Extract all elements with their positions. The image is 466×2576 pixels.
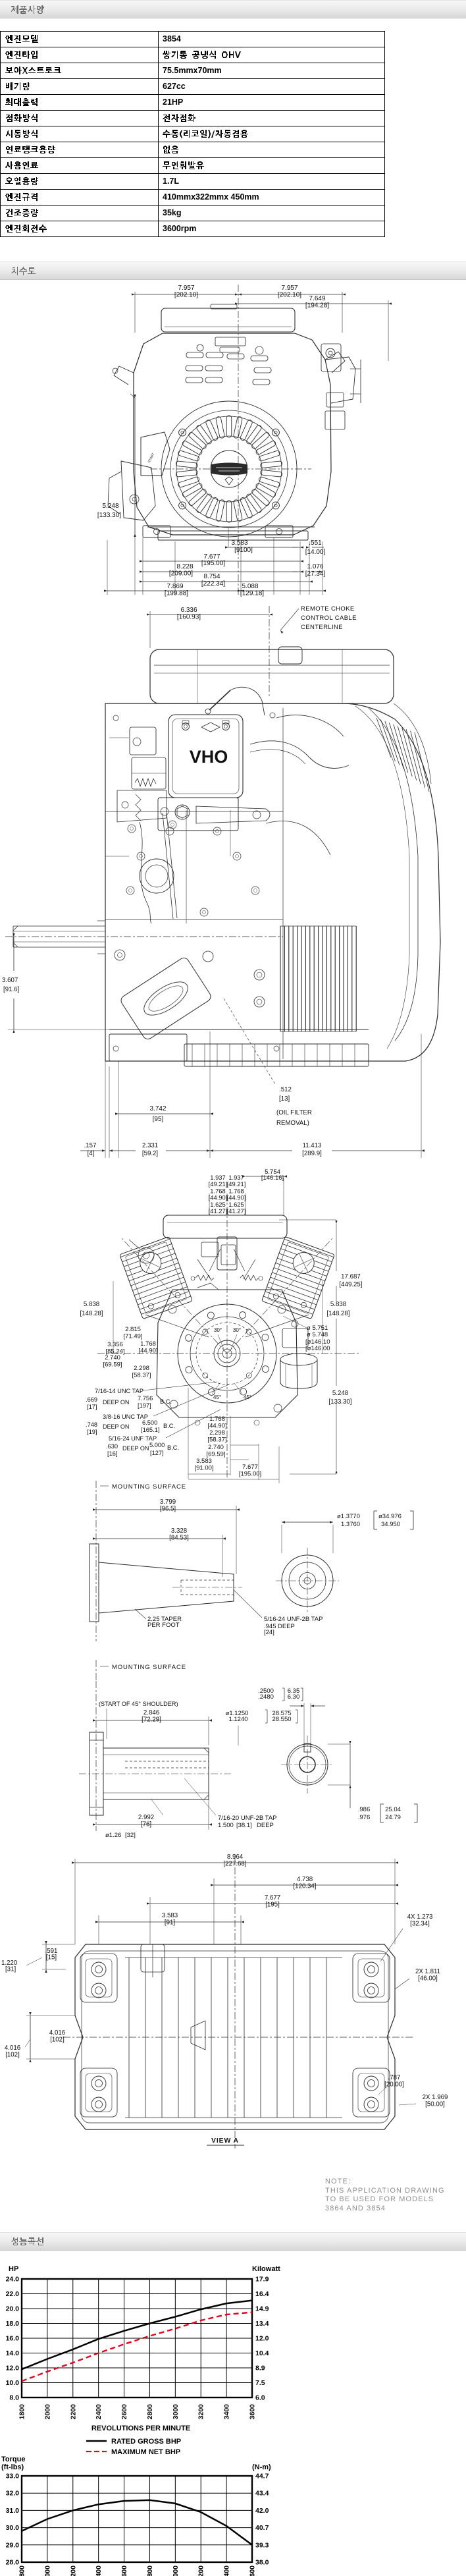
svg-text:ø1.3770: ø1.3770	[337, 1513, 360, 1520]
svg-text:25.04: 25.04	[385, 1806, 401, 1813]
svg-text:2000: 2000	[43, 2565, 51, 2576]
svg-text:7.5: 7.5	[255, 2379, 265, 2387]
svg-text:3.583: 3.583	[162, 1912, 178, 1919]
svg-text:2.815: 2.815	[125, 1326, 141, 1333]
svg-text:30.0: 30.0	[6, 2524, 20, 2532]
svg-text:1.1240: 1.1240	[228, 1716, 247, 1723]
svg-text:16.4: 16.4	[255, 2290, 269, 2298]
svg-text:[14.00]: [14.00]	[305, 549, 326, 556]
svg-text:44.7: 44.7	[255, 2473, 269, 2480]
svg-text:5/16-24 UNF-2B TAP: 5/16-24 UNF-2B TAP	[264, 1616, 323, 1623]
svg-text:[148.28]: [148.28]	[80, 1310, 103, 1317]
svg-text:[102]: [102]	[50, 2036, 65, 2043]
svg-text:[96.5]: [96.5]	[160, 1505, 176, 1512]
svg-text:[120.34]: [120.34]	[293, 1882, 316, 1890]
svg-text:3400: 3400	[223, 2404, 231, 2420]
svg-text:5.838: 5.838	[330, 1301, 346, 1308]
svg-text:[91.00]: [91.00]	[194, 1464, 213, 1471]
svg-text:1800: 1800	[18, 2565, 26, 2576]
svg-text:2400: 2400	[95, 2404, 103, 2420]
svg-text:12.0: 12.0	[6, 2365, 20, 2372]
svg-text:[72.29]: [72.29]	[142, 1716, 161, 1723]
svg-text:8.754: 8.754	[203, 573, 220, 580]
svg-text:B.C.: B.C.	[167, 1444, 179, 1451]
svg-text:.986: .986	[358, 1806, 371, 1813]
svg-text:31.0: 31.0	[6, 2507, 20, 2515]
svg-text:7.869: 7.869	[167, 583, 183, 590]
svg-text:17.687: 17.687	[341, 1273, 361, 1280]
svg-text:[32.34]: [32.34]	[410, 1920, 430, 1927]
svg-text:7.677: 7.677	[242, 1464, 258, 1471]
svg-text:ø34.976: ø34.976	[378, 1513, 401, 1520]
svg-text:[38.1]: [38.1]	[236, 1822, 252, 1829]
svg-text:[289.9]: [289.9]	[302, 1150, 322, 1157]
svg-text:DEEP ON: DEEP ON	[103, 1399, 129, 1406]
svg-text:4X 1.273: 4X 1.273	[407, 1913, 433, 1921]
svg-text:3.328: 3.328	[171, 1527, 187, 1535]
svg-text:[44.90]: [44.90]	[207, 1422, 226, 1429]
svg-text:[160.93]: [160.93]	[177, 613, 201, 620]
svg-text:2.740: 2.740	[208, 1444, 224, 1451]
svg-text:10.4: 10.4	[255, 2349, 269, 2357]
svg-text:[227.68]: [227.68]	[223, 1860, 246, 1867]
svg-text:2600: 2600	[120, 2404, 128, 2420]
svg-text:3000: 3000	[172, 2404, 180, 2420]
svg-text:2800: 2800	[146, 2404, 154, 2420]
svg-text:[15]: [15]	[46, 1954, 57, 1961]
svg-text:3200: 3200	[197, 2404, 205, 2420]
svg-text:[91]: [91]	[165, 1919, 175, 1926]
svg-text:2X 1.969: 2X 1.969	[423, 2094, 448, 2101]
svg-text:7.957: 7.957	[281, 285, 298, 292]
svg-text:[44.90]: [44.90]	[138, 1347, 157, 1354]
svg-text:8.9: 8.9	[255, 2365, 265, 2372]
svg-text:2200: 2200	[69, 2404, 77, 2420]
svg-text:[91.6]: [91.6]	[3, 986, 19, 993]
svg-text:(ft-lbs): (ft-lbs)	[1, 2463, 24, 2471]
svg-text:6.336: 6.336	[180, 607, 197, 614]
svg-text:5.000: 5.000	[149, 1442, 165, 1448]
svg-text:ø1.26: ø1.26	[105, 1832, 121, 1839]
svg-text:22.0: 22.0	[6, 2290, 20, 2298]
svg-text:5.838: 5.838	[84, 1301, 99, 1308]
svg-text:2X 1.811: 2X 1.811	[415, 1968, 440, 1975]
svg-text:B.C.: B.C.	[163, 1423, 175, 1429]
svg-text:3.799: 3.799	[160, 1498, 176, 1506]
svg-text:34.950: 34.950	[381, 1521, 400, 1528]
svg-text:2.298: 2.298	[209, 1429, 225, 1437]
svg-text:[50.00]: [50.00]	[425, 2100, 445, 2108]
svg-text:.976: .976	[358, 1814, 371, 1821]
svg-text:[84.53]: [84.53]	[169, 1534, 189, 1541]
svg-text:3.742: 3.742	[149, 1105, 166, 1112]
svg-text:OHV: OHV	[190, 747, 228, 767]
svg-text:1.768: 1.768	[140, 1340, 156, 1348]
svg-text:2800: 2800	[146, 2565, 154, 2576]
svg-text:3400: 3400	[223, 2565, 231, 2576]
svg-text:2.298: 2.298	[134, 1365, 149, 1372]
svg-text:2.331: 2.331	[142, 1142, 158, 1149]
svg-text:[195.00]: [195.00]	[239, 1470, 261, 1477]
svg-text:(START OF 45° SHOULDER): (START OF 45° SHOULDER)	[99, 1701, 178, 1707]
svg-text:CENTERLINE: CENTERLINE	[301, 624, 343, 631]
svg-text:ø 5.748: ø 5.748	[307, 1331, 328, 1338]
svg-text:VIEW A: VIEW A	[211, 2137, 239, 2145]
svg-text:24.0: 24.0	[6, 2276, 20, 2284]
svg-text:[31]: [31]	[5, 1966, 16, 1973]
svg-text:[222.34]: [222.34]	[201, 580, 225, 588]
svg-text:.748: .748	[86, 1421, 97, 1428]
svg-text:[58.37]: [58.37]	[207, 1436, 226, 1443]
svg-text:2000: 2000	[43, 2404, 51, 2420]
svg-text:5.088: 5.088	[242, 583, 258, 590]
svg-text:12.0: 12.0	[255, 2335, 269, 2343]
svg-text:3600: 3600	[249, 2404, 257, 2420]
svg-text:DEEP: DEEP	[257, 1822, 274, 1829]
svg-text:MAXIMUM NET BHP: MAXIMUM NET BHP	[111, 2448, 180, 2456]
svg-text:CONTROL CABLE: CONTROL CABLE	[301, 615, 357, 622]
svg-text:5/16-24 UNF TAP: 5/16-24 UNF TAP	[109, 1435, 157, 1442]
svg-text:1800: 1800	[18, 2404, 26, 2420]
svg-text:[129.18]: [129.18]	[240, 590, 264, 597]
svg-text:[9100]: [9100]	[234, 547, 253, 554]
svg-text:4.016: 4.016	[49, 2029, 65, 2037]
svg-text:DEEP: DEEP	[278, 1623, 295, 1630]
svg-text:42.0: 42.0	[255, 2507, 269, 2515]
svg-text:16.0: 16.0	[6, 2335, 20, 2343]
svg-text:1.3760: 1.3760	[341, 1521, 360, 1528]
svg-text:[71.49]: [71.49]	[123, 1332, 142, 1340]
svg-text:10.0: 10.0	[6, 2379, 20, 2387]
svg-text:RATED GROSS BHP: RATED GROSS BHP	[111, 2438, 181, 2446]
svg-text:[199.88]: [199.88]	[165, 590, 188, 597]
svg-text:40.7: 40.7	[255, 2524, 269, 2532]
svg-text:17.9: 17.9	[255, 2276, 269, 2284]
svg-text:1.768: 1.768	[209, 1415, 225, 1423]
svg-text:14.0: 14.0	[6, 2349, 20, 2357]
svg-text:38.0: 38.0	[255, 2559, 269, 2567]
svg-text:[59.2]: [59.2]	[142, 1150, 158, 1157]
svg-text:3200: 3200	[197, 2565, 205, 2576]
svg-text:13.4: 13.4	[255, 2320, 269, 2328]
svg-text:[202.10]: [202.10]	[174, 291, 198, 298]
svg-text:[133.30]: [133.30]	[97, 512, 121, 519]
svg-text:20.0: 20.0	[6, 2305, 20, 2313]
svg-text:29.0: 29.0	[6, 2541, 20, 2549]
svg-text:MOUNTING SURFACE: MOUNTING SURFACE	[112, 1664, 186, 1671]
svg-text:DEEP ON: DEEP ON	[122, 1445, 149, 1452]
svg-text:Torque: Torque	[1, 2455, 25, 2463]
svg-text:.512: .512	[279, 1086, 292, 1093]
svg-text:28.0: 28.0	[6, 2559, 20, 2567]
svg-text:3.583: 3.583	[196, 1458, 212, 1465]
svg-text:[69.59]: [69.59]	[103, 1361, 122, 1368]
svg-text:8.228: 8.228	[176, 563, 193, 570]
svg-text:43.4: 43.4	[255, 2490, 269, 2498]
svg-text:[195]: [195]	[265, 1901, 280, 1908]
svg-text:[ø146.00: [ø146.00	[305, 1345, 330, 1352]
svg-text:6.30: 6.30	[288, 1693, 300, 1701]
svg-text:6.0: 6.0	[255, 2394, 265, 2402]
svg-text:30°: 30°	[233, 1327, 241, 1333]
svg-text:3.356: 3.356	[107, 1341, 123, 1348]
svg-text:45°: 45°	[213, 1394, 221, 1400]
svg-text:MOUNTING SURFACE: MOUNTING SURFACE	[112, 1483, 186, 1491]
svg-text:18.0: 18.0	[6, 2320, 20, 2328]
svg-text:2.846: 2.846	[143, 1709, 159, 1716]
svg-text:4.738: 4.738	[297, 1876, 313, 1883]
svg-text:[102]: [102]	[5, 2051, 20, 2058]
svg-text:6.500: 6.500	[142, 1419, 157, 1426]
svg-text:REMOVAL): REMOVAL)	[276, 1120, 309, 1127]
svg-text:2.740: 2.740	[105, 1354, 120, 1361]
svg-text:[41.27]: [41.27]	[227, 1207, 246, 1215]
svg-text:2600: 2600	[120, 2565, 128, 2576]
svg-text:[13]: [13]	[279, 1095, 290, 1103]
svg-text:[20.00]: [20.00]	[384, 2081, 404, 2088]
svg-text:11.413: 11.413	[303, 1142, 322, 1149]
svg-text:39.3: 39.3	[255, 2541, 269, 2549]
svg-text:7.677: 7.677	[265, 1894, 280, 1902]
svg-text:.669: .669	[86, 1396, 97, 1403]
svg-text:[146.16]: [146.16]	[261, 1174, 284, 1182]
svg-text:[27.34]: [27.34]	[305, 570, 326, 578]
svg-text:3000: 3000	[172, 2565, 180, 2576]
svg-text:PER FOOT: PER FOOT	[147, 1622, 180, 1629]
svg-text:[127]: [127]	[150, 1450, 164, 1456]
svg-text:.630: .630	[106, 1443, 118, 1450]
svg-text:.787: .787	[388, 2074, 401, 2081]
svg-text:[17]: [17]	[87, 1404, 97, 1410]
svg-text:33.0: 33.0	[6, 2473, 20, 2480]
svg-text:[69.59]: [69.59]	[206, 1450, 225, 1458]
svg-text:3600: 3600	[249, 2565, 257, 2576]
svg-text:HP: HP	[9, 2265, 18, 2273]
svg-text:START: START	[147, 452, 156, 464]
svg-text:[58.37]: [58.37]	[132, 1371, 151, 1379]
svg-text:7.756: 7.756	[138, 1395, 153, 1402]
svg-text:[197]: [197]	[138, 1402, 151, 1409]
svg-text:8.964: 8.964	[227, 1853, 244, 1861]
svg-text:28.550: 28.550	[272, 1716, 291, 1723]
svg-text:[95]: [95]	[153, 1116, 164, 1123]
svg-text:[133.30]: [133.30]	[328, 1398, 351, 1406]
svg-text:7/16-14 UNC TAP: 7/16-14 UNC TAP	[95, 1388, 143, 1394]
svg-text:[19]: [19]	[87, 1429, 97, 1435]
svg-text:[4]: [4]	[88, 1150, 95, 1157]
svg-text:[24]: [24]	[264, 1629, 274, 1636]
svg-text:DEEP ON: DEEP ON	[103, 1423, 129, 1430]
svg-text:45°: 45°	[244, 1394, 251, 1400]
svg-text:.551: .551	[309, 539, 322, 547]
svg-text:B.C.: B.C.	[160, 1398, 172, 1405]
svg-text:5.248: 5.248	[102, 503, 118, 510]
svg-text:7/16-20 UNF-2B TAP: 7/16-20 UNF-2B TAP	[218, 1815, 276, 1822]
svg-text:[16]: [16]	[107, 1450, 118, 1457]
svg-text:2.992: 2.992	[138, 1814, 154, 1821]
svg-text:[202.10]: [202.10]	[278, 291, 301, 298]
svg-text:[449.25]: [449.25]	[339, 1281, 362, 1288]
svg-text:4.016: 4.016	[5, 2044, 20, 2052]
svg-text:1.500: 1.500	[218, 1822, 234, 1829]
svg-text:2200: 2200	[69, 2565, 77, 2576]
svg-text:.157: .157	[84, 1142, 97, 1149]
svg-text:2400: 2400	[95, 2565, 103, 2576]
svg-text:[32]: [32]	[125, 1832, 136, 1839]
svg-text:Kilowatt: Kilowatt	[252, 2265, 280, 2273]
svg-text:[165.1]: [165.1]	[141, 1427, 159, 1433]
svg-text:.2480: .2480	[258, 1693, 274, 1701]
svg-text:7.957: 7.957	[178, 285, 194, 292]
svg-text:24.79: 24.79	[385, 1814, 401, 1821]
svg-text:8.0: 8.0	[9, 2394, 19, 2402]
svg-text:[148.28]: [148.28]	[326, 1310, 349, 1317]
svg-text:[46.00]: [46.00]	[418, 1975, 438, 1982]
svg-text:3.607: 3.607	[2, 977, 18, 984]
svg-text:30°: 30°	[214, 1327, 222, 1333]
svg-text:1.076: 1.076	[307, 563, 323, 570]
svg-text:14.9: 14.9	[255, 2305, 269, 2313]
svg-text:3.583: 3.583	[231, 539, 247, 547]
svg-text:(OIL FILTER: (OIL FILTER	[276, 1109, 312, 1116]
svg-text:3/8-16 UNC TAP: 3/8-16 UNC TAP	[103, 1413, 148, 1420]
svg-text:[76]: [76]	[141, 1821, 151, 1828]
svg-text:REMOTE CHOKE: REMOTE CHOKE	[301, 605, 355, 613]
svg-text:[209.00]: [209.00]	[169, 570, 193, 578]
svg-text:[194.28]: [194.28]	[305, 302, 329, 309]
svg-text:32.0: 32.0	[6, 2490, 20, 2498]
svg-text:[41.27]: [41.27]	[209, 1207, 228, 1215]
svg-text:5.248: 5.248	[332, 1390, 348, 1397]
svg-text:REVOLUTIONS PER MINUTE: REVOLUTIONS PER MINUTE	[91, 2425, 190, 2432]
svg-text:(N-m): (N-m)	[252, 2463, 271, 2471]
svg-text:[195.00]: [195.00]	[201, 560, 225, 567]
svg-text:7.649: 7.649	[309, 295, 325, 302]
